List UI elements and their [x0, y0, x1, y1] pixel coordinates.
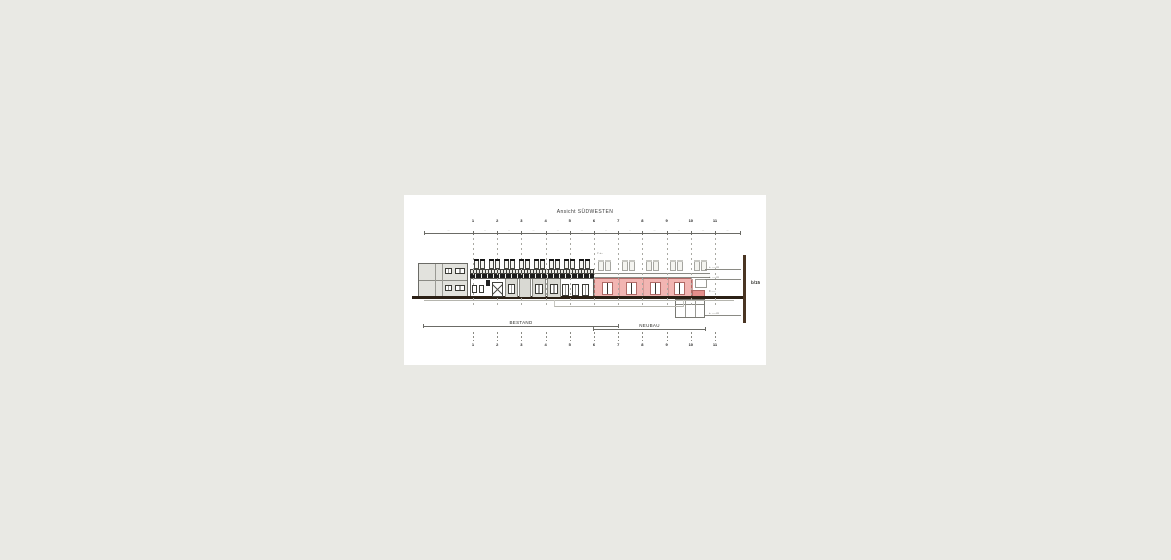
grid-axis-tick-bottom — [618, 332, 619, 341]
level-label: ± ‥‥ — [709, 289, 716, 293]
roof-monitor-pair-new — [622, 260, 636, 271]
drawing-title: Ansicht SÜDWESTEN — [404, 209, 766, 215]
grid-axis-tick-bottom — [594, 332, 595, 341]
drawing-sheet: Ansicht SÜDWESTEN b/15 ▿ +‥ BESTAND NEUB… — [404, 195, 766, 365]
roof-monitor-pair — [474, 259, 486, 269]
window — [674, 282, 685, 295]
level-line — [705, 315, 741, 316]
dim-value: ‥ — [673, 228, 685, 232]
dim-tick — [570, 231, 571, 235]
grid-axis-tick-bottom — [473, 332, 474, 341]
grid-axis-tick-bottom — [497, 332, 498, 341]
window — [479, 285, 484, 293]
grid-axis-line — [594, 238, 595, 308]
dim-value: ‥ — [552, 228, 564, 232]
window — [472, 285, 477, 293]
label-bestand: BESTAND — [423, 320, 619, 325]
window — [445, 268, 452, 274]
roof-monitor — [534, 259, 539, 269]
facade-joint — [435, 264, 436, 297]
grid-number-bottom: 2 — [491, 342, 503, 347]
window — [650, 282, 661, 295]
basement-mullion — [695, 300, 696, 317]
section-marker-line — [743, 255, 746, 323]
window — [550, 284, 558, 294]
roof-monitor-pair — [579, 259, 591, 269]
roof-monitor — [570, 259, 575, 269]
level-line — [705, 279, 741, 280]
ground-line — [412, 296, 745, 299]
dim-tick — [521, 231, 522, 235]
dim-value: ‥ — [600, 228, 612, 232]
grid-axis-line — [570, 238, 571, 308]
grid-axis-line — [546, 238, 547, 308]
roof-monitor — [653, 260, 659, 271]
grid-number-top: 2 — [491, 218, 503, 223]
grid-number-bottom: 11 — [709, 342, 721, 347]
grid-number-bottom: 5 — [564, 342, 576, 347]
dim-tick — [424, 231, 425, 235]
dim-value: ‥ — [503, 228, 515, 232]
roof-monitor — [489, 259, 494, 269]
grid-axis-tick-bottom — [667, 332, 668, 341]
roof-elevation-marker: ▿ +‥ — [597, 251, 603, 255]
roof-monitor — [598, 260, 604, 271]
window — [535, 284, 543, 294]
roof-monitor — [549, 259, 554, 269]
dim-tick — [740, 231, 741, 235]
roof-monitor-pair — [504, 259, 516, 269]
grid-axis-line — [691, 238, 692, 308]
sheet-reference: b/15 — [751, 280, 760, 285]
window — [582, 284, 589, 296]
roof-monitor — [646, 260, 652, 271]
grid-number-top: 10 — [685, 218, 697, 223]
window — [572, 284, 579, 296]
dim-tick — [691, 231, 692, 235]
window — [602, 282, 613, 295]
dim-tick — [497, 231, 498, 235]
roof-monitor — [585, 259, 590, 269]
elevation-left-block — [418, 263, 468, 298]
bestand-dim-line — [423, 326, 619, 327]
roof-monitor — [504, 259, 509, 269]
floor-line — [419, 280, 467, 281]
roof-monitor-pair-new — [646, 260, 660, 271]
roof-monitor — [540, 259, 545, 269]
grid-number-top: 8 — [636, 218, 648, 223]
grid-number-top: 11 — [709, 218, 721, 223]
dim-value: ‥ — [722, 228, 734, 232]
window — [562, 284, 569, 296]
neubau-dim-line — [593, 329, 706, 330]
hatched-opening — [492, 282, 503, 297]
grid-number-top: 7 — [612, 218, 624, 223]
grid-number-top: 1 — [467, 218, 479, 223]
grid-axis-line — [521, 238, 522, 308]
facade-dark-element — [486, 280, 490, 286]
roof-monitor — [474, 259, 479, 269]
grid-number-top: 3 — [515, 218, 527, 223]
facade-panel — [519, 279, 531, 297]
dim-tick — [594, 231, 595, 235]
grid-axis-tick-bottom — [546, 332, 547, 341]
roof-monitor-pair — [519, 259, 531, 269]
window — [455, 285, 465, 291]
level-line — [705, 269, 741, 270]
roof-monitor — [555, 259, 560, 269]
dim-tick — [715, 231, 716, 235]
roof-monitor-pair — [564, 259, 576, 269]
dim-value: ‥ — [443, 228, 455, 232]
roof-monitor — [677, 260, 683, 271]
roof-monitor — [519, 259, 524, 269]
grid-number-bottom: 10 — [685, 342, 697, 347]
grid-number-bottom: 8 — [636, 342, 648, 347]
grid-axis-line — [618, 238, 619, 308]
roof-monitor — [564, 259, 569, 269]
grid-axis-line — [497, 238, 498, 308]
roof-monitor — [605, 260, 611, 271]
grid-axis-tick-bottom — [642, 332, 643, 341]
grid-number-bottom: 9 — [661, 342, 673, 347]
roof-monitor-pair — [549, 259, 561, 269]
dim-tick — [667, 231, 668, 235]
grid-axis-line — [667, 238, 668, 308]
dim-value: ‥ — [624, 228, 636, 232]
grid-number-top: 6 — [588, 218, 600, 223]
grid-number-bottom: 3 — [515, 342, 527, 347]
facade-joint — [668, 279, 669, 297]
dim-tick — [642, 231, 643, 235]
grid-number-bottom: 4 — [540, 342, 552, 347]
roof-monitor — [670, 260, 676, 271]
grid-number-bottom: 6 — [588, 342, 600, 347]
roof-monitor-pair — [489, 259, 501, 269]
window — [455, 268, 465, 274]
roof-monitor — [694, 260, 700, 271]
basement-mullion — [685, 300, 686, 317]
roof-monitor-pair-new — [598, 260, 612, 271]
window — [626, 282, 637, 295]
grid-number-top: 5 — [564, 218, 576, 223]
facade-joint — [643, 279, 644, 297]
facade-joint — [619, 279, 620, 297]
roof-monitor-pair — [534, 259, 546, 269]
window — [508, 284, 515, 294]
dim-tick — [546, 231, 547, 235]
roof-monitor — [629, 260, 635, 271]
grid-number-bottom: 1 — [467, 342, 479, 347]
roof-monitor-pair-new — [670, 260, 684, 271]
dim-value: ‥ — [479, 228, 491, 232]
grid-number-top: 4 — [540, 218, 552, 223]
grid-axis-tick-bottom — [691, 332, 692, 341]
roof-monitor — [622, 260, 628, 271]
level-label: + ‥‥ m — [709, 311, 719, 315]
facade-joint — [442, 264, 443, 297]
label-neubau: NEUBAU — [593, 323, 706, 328]
neubau-roof-box — [695, 279, 707, 288]
roof-monitor — [510, 259, 515, 269]
dim-value: ‥ — [528, 228, 540, 232]
window — [445, 285, 452, 291]
roof-monitor — [579, 259, 584, 269]
grid-axis-line — [715, 238, 716, 308]
grid-axis-tick-bottom — [715, 332, 716, 341]
dim-tick — [618, 231, 619, 235]
grid-number-top: 9 — [661, 218, 673, 223]
roof-monitor — [525, 259, 530, 269]
grid-axis-tick-bottom — [521, 332, 522, 341]
dim-tick — [473, 231, 474, 235]
desktop-background: { "window": { "background": "#e9e9e4", "… — [0, 0, 1171, 560]
top-dim-line — [424, 233, 740, 234]
dim-value: ‥ — [697, 228, 709, 232]
grid-axis-line — [473, 238, 474, 308]
grid-number-bottom: 7 — [612, 342, 624, 347]
dim-value: ‥ — [649, 228, 661, 232]
level-label: + ‥‥ m — [709, 275, 719, 279]
grid-axis-line — [642, 238, 643, 308]
grid-axis-tick-bottom — [570, 332, 571, 341]
roof-monitor — [480, 259, 485, 269]
roof-monitor — [495, 259, 500, 269]
level-label: + ‥‥ m — [709, 265, 719, 269]
dim-value: ‥ — [576, 228, 588, 232]
